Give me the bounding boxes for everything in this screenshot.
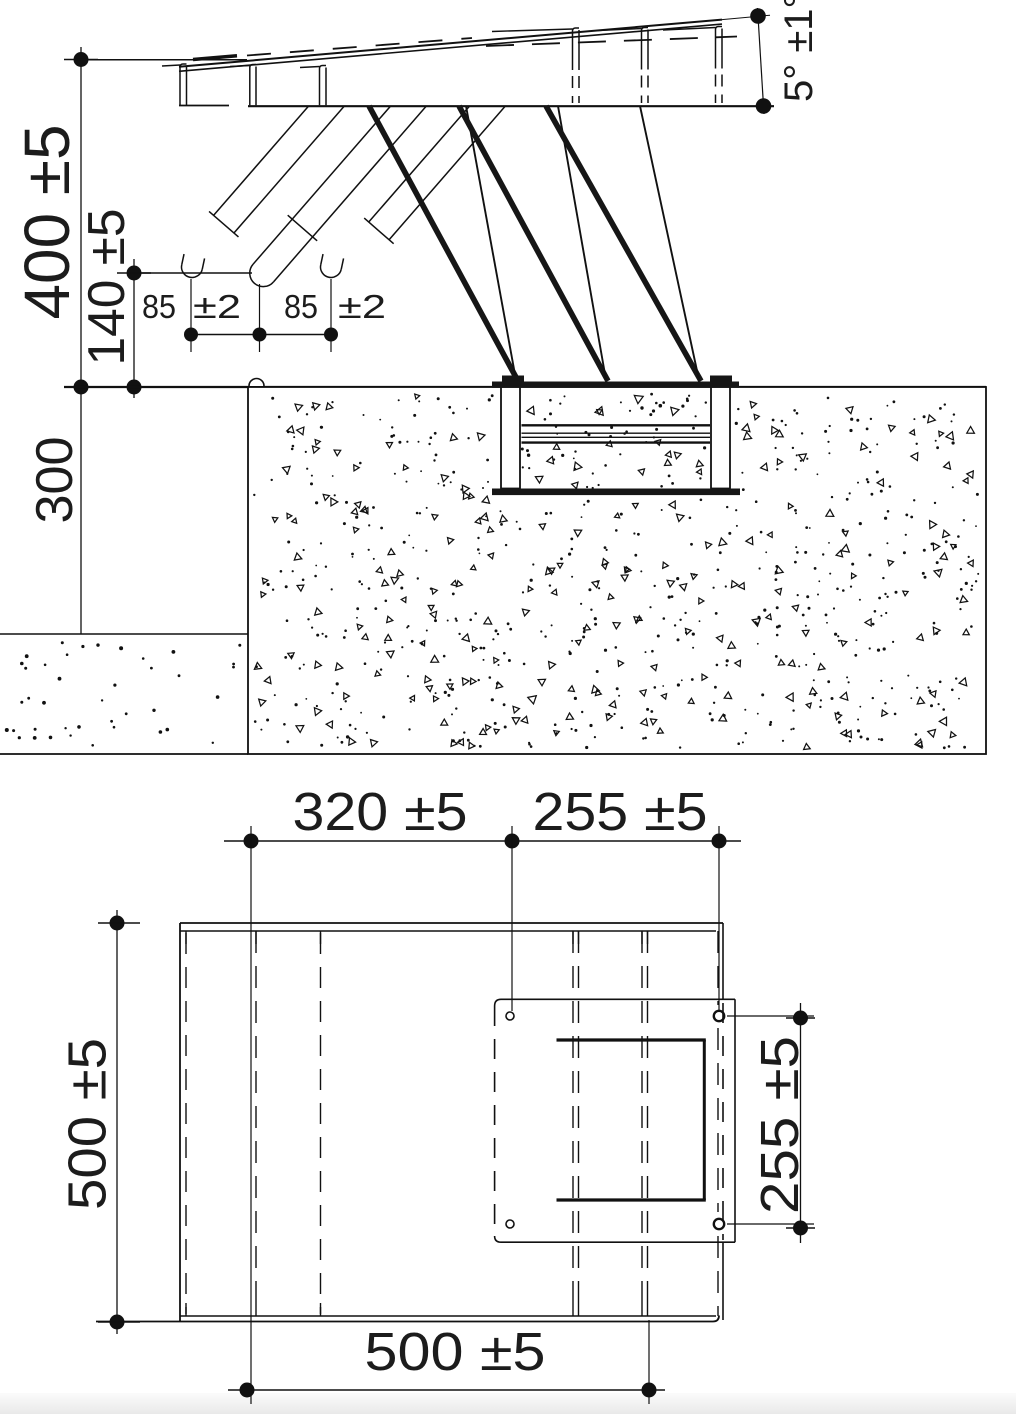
svg-text:85: 85 xyxy=(284,288,318,325)
svg-text:500 ±5: 500 ±5 xyxy=(58,1038,118,1210)
svg-text:±2: ±2 xyxy=(193,288,241,325)
svg-text:±2: ±2 xyxy=(338,288,386,325)
svg-text:255 ±5: 255 ±5 xyxy=(750,1036,810,1214)
svg-text:140 ±5: 140 ±5 xyxy=(78,209,136,366)
svg-text:500 ±5: 500 ±5 xyxy=(365,1322,546,1382)
svg-text:320 ±5: 320 ±5 xyxy=(293,782,468,842)
svg-text:85: 85 xyxy=(142,288,176,325)
svg-text:300: 300 xyxy=(26,437,84,524)
svg-text:400 ±5: 400 ±5 xyxy=(11,125,83,320)
svg-text:5° ±1°: 5° ±1° xyxy=(777,0,821,102)
svg-text:255 ±5: 255 ±5 xyxy=(533,782,708,842)
